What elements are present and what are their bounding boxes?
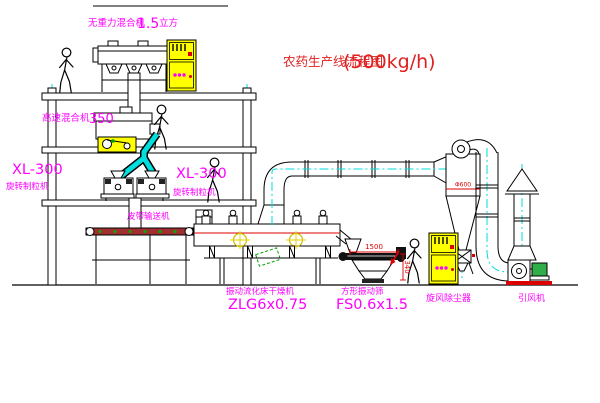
label-cyclone: 旋风除尘器 <box>426 292 471 304</box>
dim-cyclone-diameter: Φ600 <box>455 182 471 189</box>
control-cabinet-upper <box>167 40 196 91</box>
worker-figure <box>60 48 73 92</box>
induced-draft-fan <box>506 260 552 285</box>
control-cabinet-lower <box>429 233 458 284</box>
label-high-speed-mixer-name: 高速混合机 <box>42 112 90 124</box>
label-dryer-name: 振动流化床干燥机 <box>226 286 295 297</box>
granulator-right <box>136 171 169 201</box>
label-granulator-mid-name: 旋转制粒机 <box>173 187 216 198</box>
process-flow-diagram: 1500 340 Φ600 农药生产线流程图 (500kg/h) 无重力混合机 … <box>0 0 600 403</box>
label-sieve-name: 方形振动筛 <box>341 286 384 297</box>
label-fan: 引风机 <box>518 292 545 304</box>
label-belt-conveyor: 皮带输送机 <box>127 211 170 222</box>
belt-conveyor <box>86 228 193 285</box>
label-granulator-left-name: 旋转制粒机 <box>6 181 49 192</box>
label-gravity-mixer-unit: 立方 <box>159 17 178 29</box>
dim-sieve-height: 340 <box>403 260 411 273</box>
dim-sieve-length: 1500 <box>365 243 383 251</box>
dryer-exhaust-duct <box>258 156 450 225</box>
drawing-title: 农药生产线流程图 (500kg/h) <box>283 51 436 73</box>
label-granulator-left-model: XL-300 <box>12 162 63 178</box>
cyclone-exhaust-duct <box>476 148 510 281</box>
title-capacity: (500kg/h) <box>343 51 436 73</box>
label-sieve-model: FS0.6x1.5 <box>336 297 408 313</box>
granulator-left <box>101 171 134 201</box>
label-gravity-mixer-size: 1.5 <box>137 16 159 32</box>
label-high-speed-mixer-size: 350 <box>89 112 114 127</box>
label-dryer-model: ZLG6x0.75 <box>228 297 307 313</box>
label-granulator-mid-model: XL-300 <box>176 166 227 182</box>
